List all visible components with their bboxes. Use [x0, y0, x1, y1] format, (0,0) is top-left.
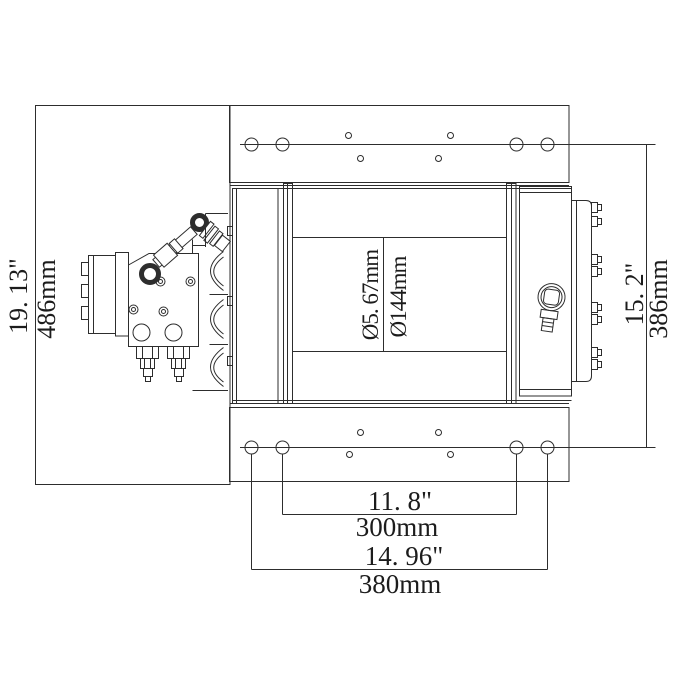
dim-mount-side-mm: 386mm [645, 219, 673, 379]
dim-hole-span-inner-inch: 11. 8" [320, 487, 480, 515]
hydraulic-hose [142, 216, 233, 283]
bottom-mounting-plate [230, 401, 656, 482]
housing-bolts [592, 203, 602, 370]
port-fittings [137, 347, 190, 382]
dim-hole-span-inner-mm: 300mm [317, 513, 477, 541]
dim-hole-span-outer-mm: 380mm [320, 570, 480, 598]
dim-overall-mm: 486mm [33, 219, 61, 379]
top-mounting-plate [230, 106, 656, 189]
drain-plug [533, 282, 566, 333]
chassis-outline [36, 106, 231, 485]
gear-housing [572, 201, 602, 382]
drawing-canvas: 19. 13" 486mm 15. 2" 386mm Ø5. 67mm Ø144… [0, 0, 700, 700]
dim-drum-outer-diameter: Ø144mm [385, 217, 413, 377]
dim-hole-span-outer-inch: 14. 96" [324, 542, 484, 570]
dim-overall-inch: 19. 13" [5, 216, 33, 376]
dim-drum-inner-diameter: Ø5. 67mm [357, 215, 385, 375]
